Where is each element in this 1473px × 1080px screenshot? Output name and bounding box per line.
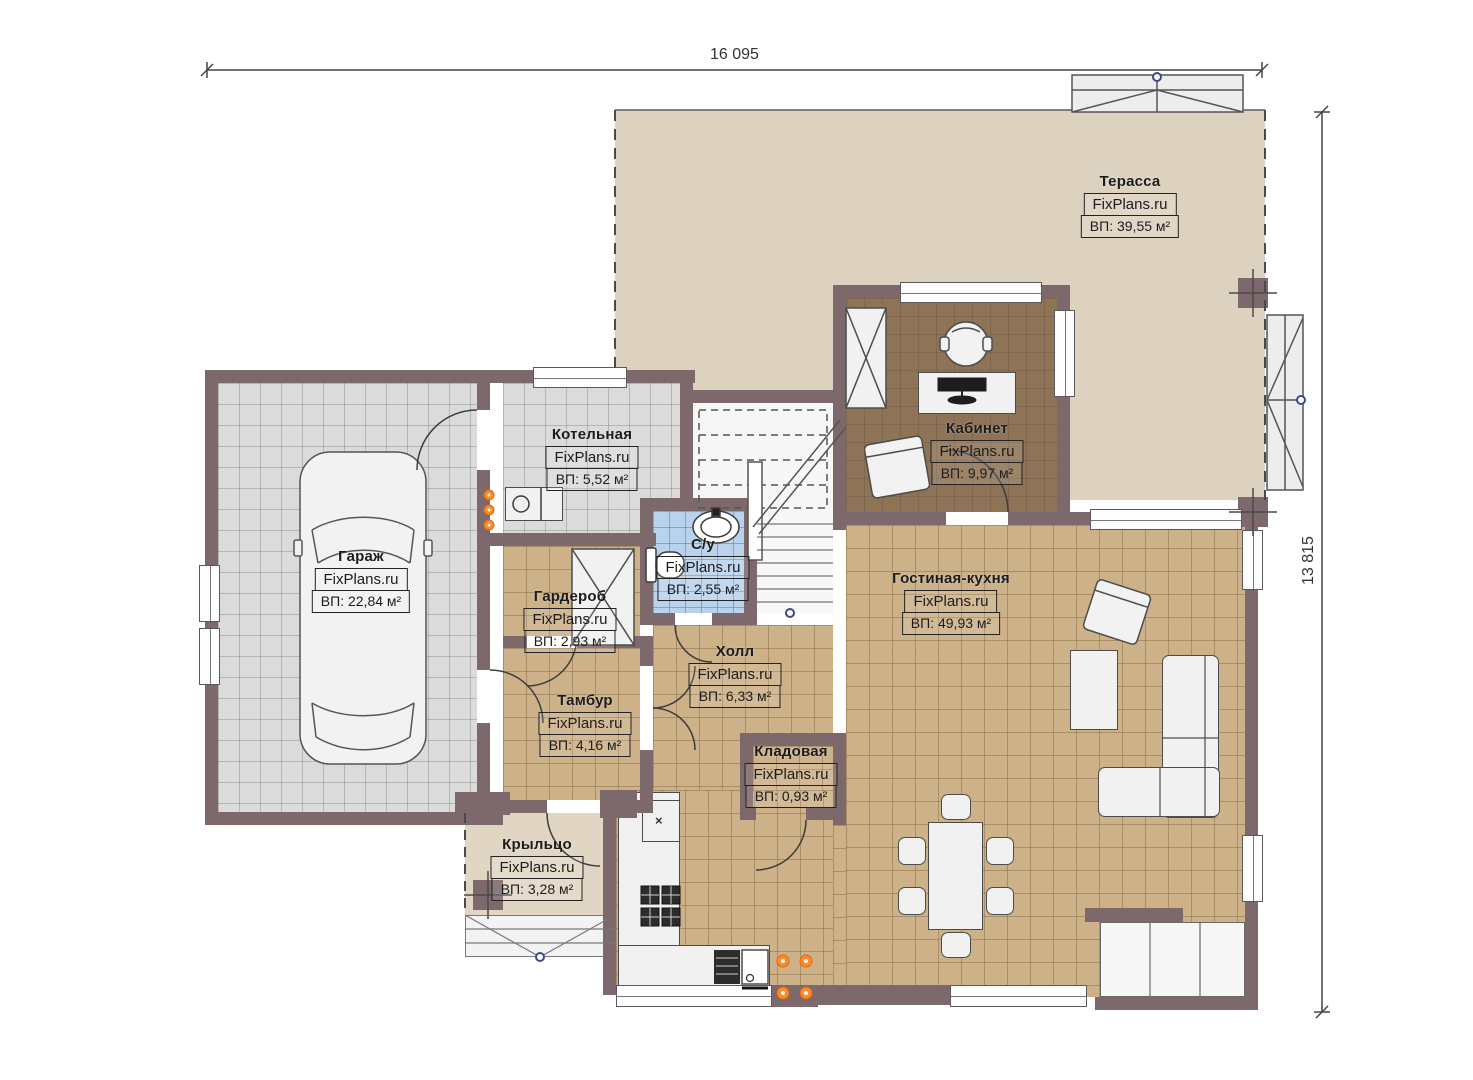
watermark: FixPlans.ru [930,440,1023,463]
wall-segment [205,370,495,383]
wall-segment [680,403,693,498]
dining-chair [898,887,926,915]
room-name: Гардероб [534,588,607,605]
room-label-vestibule: Тамбур FixPlans.ru ВП: 4,16 м² [538,692,631,757]
wall-segment [1095,997,1247,1010]
room-label-boiler-room: Котельная FixPlans.ru ВП: 5,52 м² [545,426,638,491]
terrace-stairs-top [1072,73,1243,112]
room-label-living-kitchen: Гостиная-кухня FixPlans.ru ВП: 49,93 м² [892,570,1010,635]
wall-segment [640,511,653,625]
window [900,282,1042,303]
wall-segment [846,512,946,525]
room-area: ВП: 3,28 м² [492,878,583,901]
wall-segment [490,533,656,546]
dimension-line-top [201,62,1268,78]
wall-segment [712,613,757,625]
window [1054,310,1075,397]
dining-chair [941,932,971,958]
room-label-terrace: Терасса FixPlans.ru ВП: 39,55 м² [1081,173,1179,238]
watermark: FixPlans.ru [490,856,583,879]
room-label-wardrobe: Гардероб FixPlans.ru ВП: 2,93 м² [523,588,616,653]
radiator-block [770,985,818,1007]
floor-connector [833,825,846,985]
watermark: FixPlans.ru [538,712,631,735]
wall-segment [640,613,675,625]
room-name: Кабинет [946,420,1008,437]
wall-segment [640,636,653,666]
fridge-mark: × [655,813,663,828]
wall-segment [833,285,846,530]
wall-segment [806,808,846,820]
dimension-width: 16 095 [710,46,759,64]
room-name: Гостиная-кухня [892,570,1010,587]
floor-plan: × [0,0,1473,1080]
wall-segment [640,750,653,813]
watermark: FixPlans.ru [523,608,616,631]
room-label-office: Кабинет FixPlans.ru ВП: 9,97 м² [930,420,1023,485]
room-label-storage: Кладовая FixPlans.ru ВП: 0,93 м² [744,743,837,808]
room-name: Гараж [338,548,384,565]
watermark: FixPlans.ru [656,556,749,579]
wall-segment [680,390,846,403]
window [1242,835,1263,902]
sofa-horizontal-seat [1098,767,1220,817]
room-area: ВП: 5,52 м² [547,468,638,491]
room-name: Котельная [552,426,632,443]
room-name: Холл [716,643,754,660]
room-area: ВП: 2,93 м² [525,630,616,653]
dining-chair [986,837,1014,865]
dining-chair [941,794,971,820]
wall-segment [1245,895,1258,1010]
kitchen-counter-horizontal [618,945,770,988]
dining-table [928,822,983,930]
room-area: ВП: 0,93 м² [746,785,837,808]
terrace-column [1238,497,1268,527]
room-label-bathroom: С/у FixPlans.ru ВП: 2,55 м² [656,536,749,601]
room-label-garage: Гараж FixPlans.ru ВП: 22,84 м² [312,548,410,613]
coffee-table [1070,650,1118,730]
wall-segment [477,470,490,670]
wall-segment [740,808,756,820]
window [199,565,220,622]
porch-steps [465,915,615,957]
room-label-hall: Холл FixPlans.ru ВП: 6,33 м² [688,643,781,708]
room-label-porch: Крыльцо FixPlans.ru ВП: 3,28 м² [490,836,583,901]
wall-segment [477,383,490,410]
dimension-height: 13 815 [1300,536,1318,585]
room-name: Терасса [1100,173,1161,190]
watermark: FixPlans.ru [904,590,997,613]
wall-segment [603,790,616,995]
window [533,367,627,388]
window [199,628,220,685]
room-name: Крыльцо [502,836,572,853]
window [1242,530,1263,590]
room-name: С/у [691,536,715,553]
wall-segment [818,985,953,1005]
terrace-sliding-window [1090,509,1242,530]
room-area: ВП: 4,16 м² [540,734,631,757]
boiler-unit [505,487,563,521]
room-area: ВП: 2,55 м² [658,578,749,601]
wall-segment [1008,512,1070,525]
kitchen-window [616,985,772,1007]
room-area: ВП: 6,33 м² [690,685,781,708]
watermark: FixPlans.ru [1083,193,1176,216]
watermark: FixPlans.ru [545,446,638,469]
watermark: FixPlans.ru [688,663,781,686]
room-area: ВП: 39,55 м² [1081,215,1179,238]
office-desk [918,372,1016,414]
terrace-stairs-right [1267,315,1305,490]
corner-window-bay [1100,922,1245,997]
room-area: ВП: 9,97 м² [932,462,1023,485]
dining-chair [898,837,926,865]
watermark: FixPlans.ru [744,763,837,786]
porch-pier [600,790,637,818]
room-name: Кладовая [754,743,827,760]
dining-chair [986,887,1014,915]
terrace-column [1238,278,1268,308]
room-name: Тамбур [557,692,613,709]
window [950,985,1087,1007]
floor-stairs-upper [693,403,833,511]
room-area: ВП: 22,84 м² [312,590,410,613]
floor-stairs-lower [757,511,833,613]
porch-pier [455,792,510,815]
wall-segment [640,498,757,511]
wall-segment [1085,908,1183,922]
watermark: FixPlans.ru [314,568,407,591]
room-area: ВП: 49,93 м² [902,612,1000,635]
